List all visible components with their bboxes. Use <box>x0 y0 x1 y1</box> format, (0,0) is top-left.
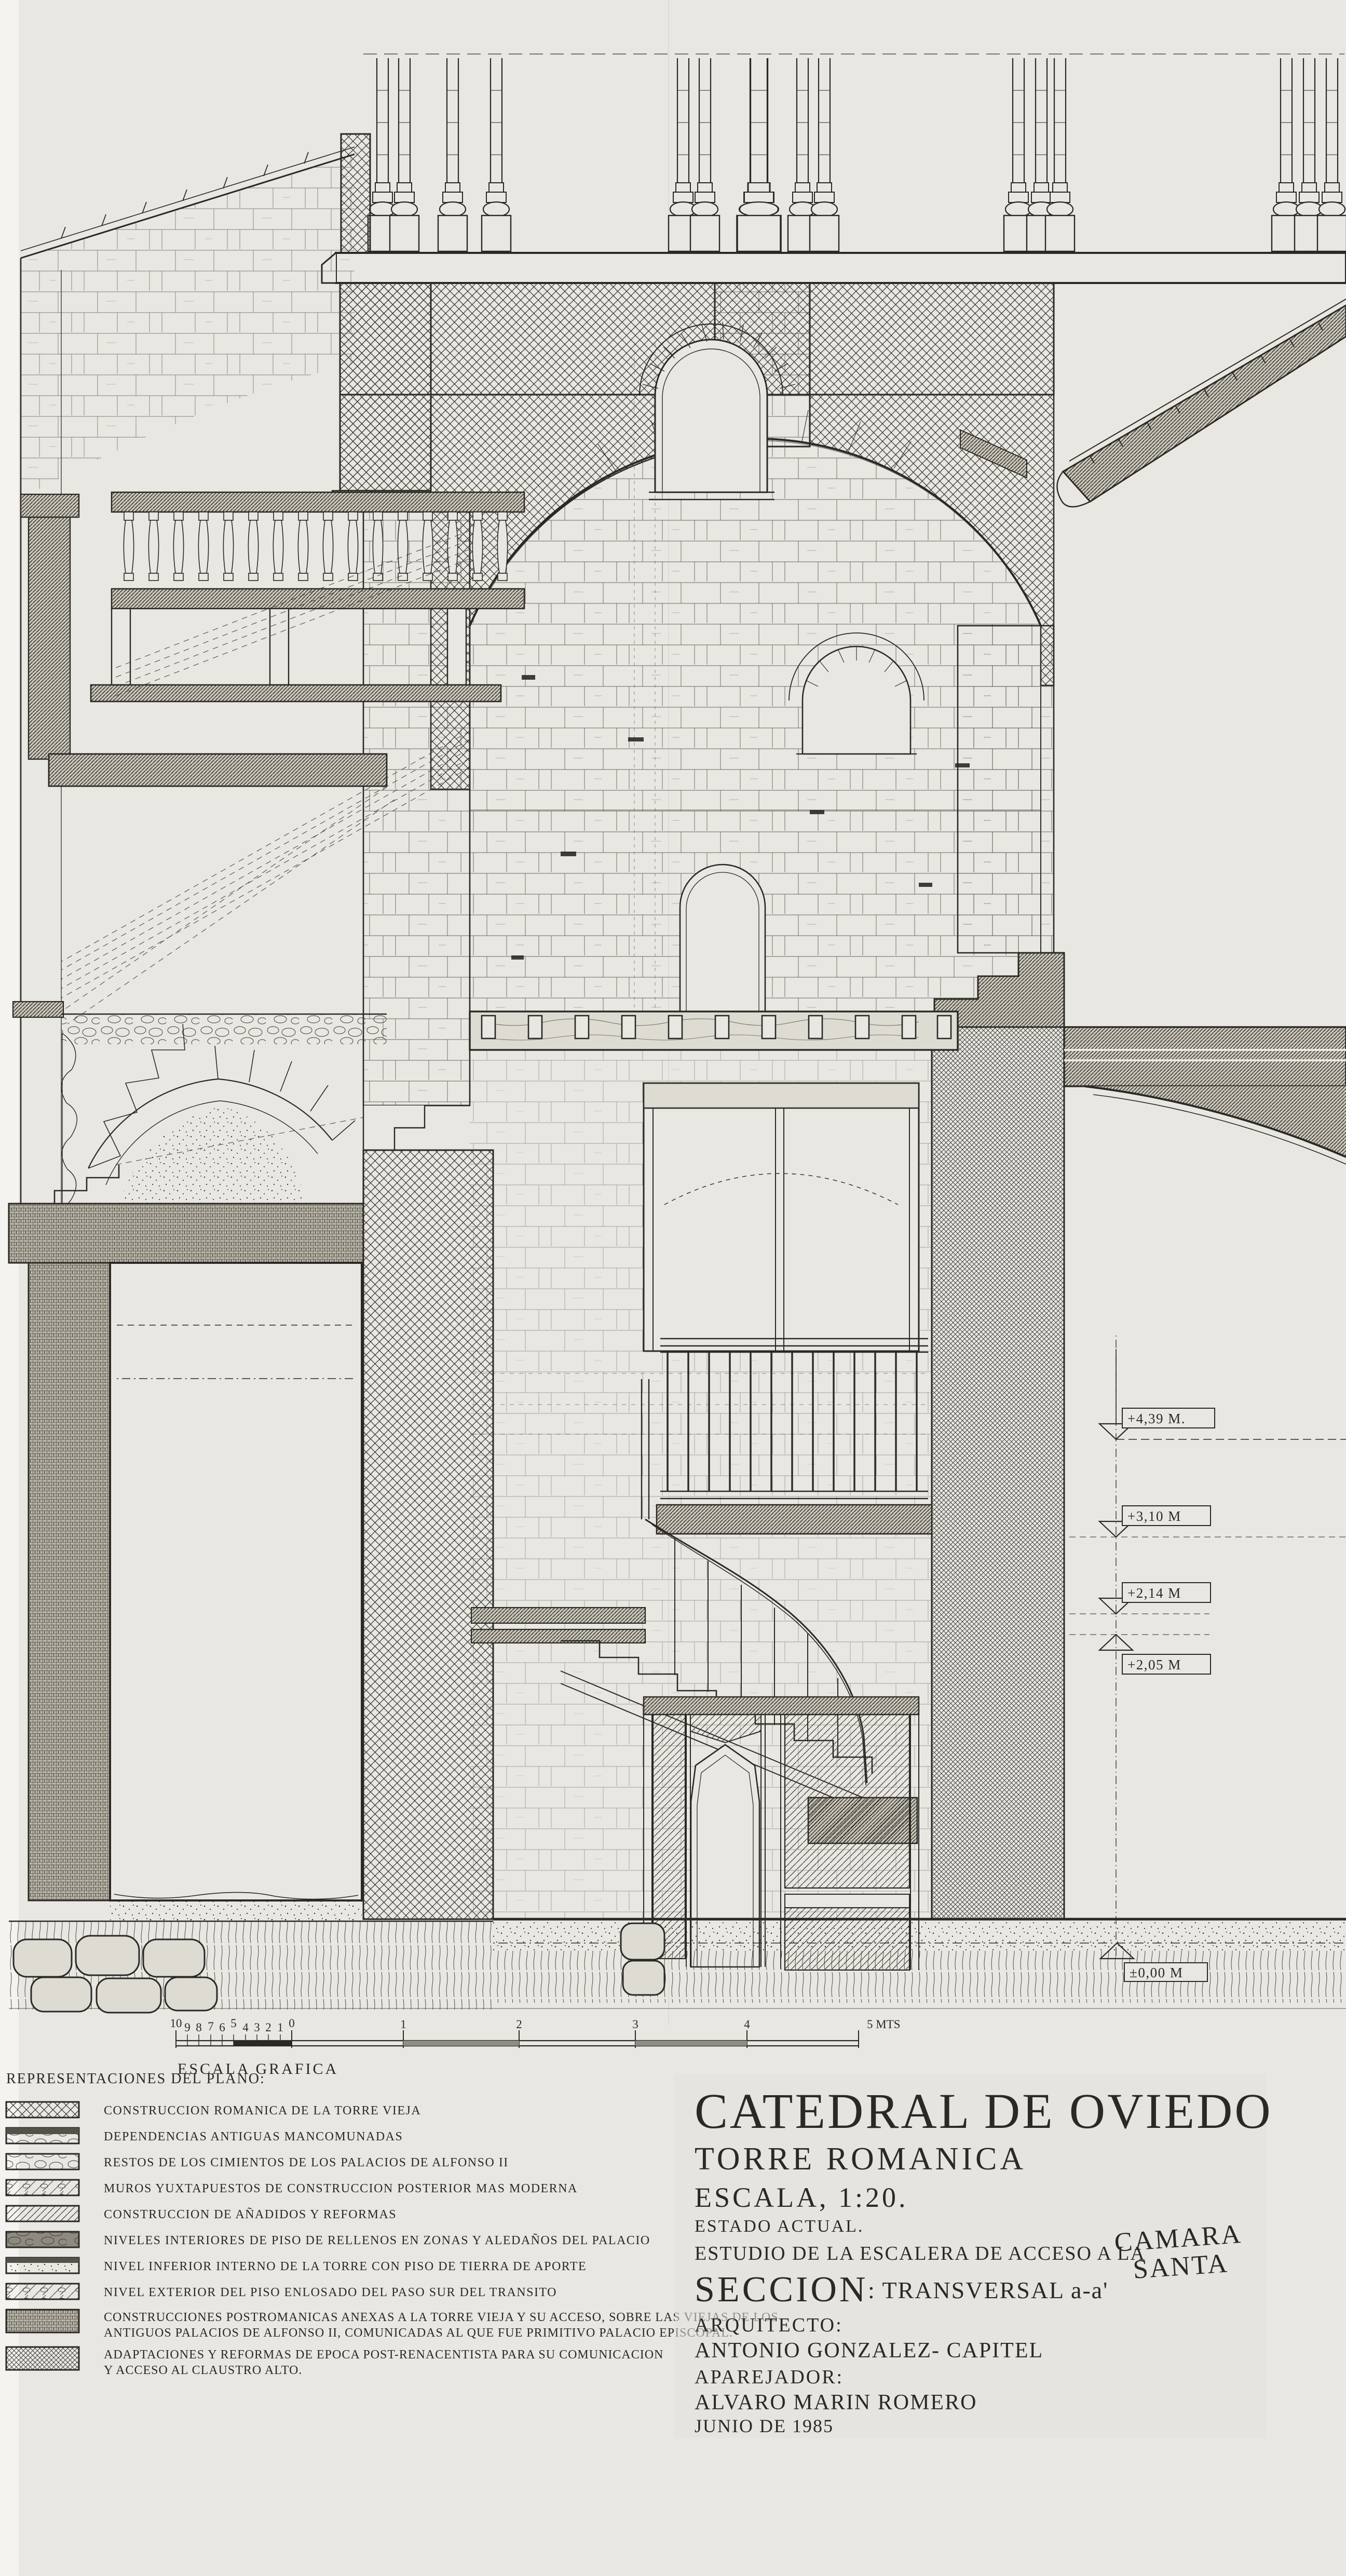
svg-text:CONSTRUCCION DE AÑADIDOS Y REF: CONSTRUCCION DE AÑADIDOS Y REFORMAS <box>104 2208 397 2221</box>
scale-tick: 4 <box>242 2021 249 2034</box>
scale-tick: 6 <box>219 2021 225 2034</box>
drawing-scale: ESCALA, 1:20. <box>695 2182 908 2213</box>
architect-name: ANTONIO GONZALEZ- CAPITEL <box>695 2339 1043 2363</box>
title-block: CATEDRAL DE OVIEDO TORRE ROMANICA ESCALA… <box>675 2074 1273 2438</box>
elevation-label: +4,39 M. <box>1127 1411 1186 1426</box>
svg-text:NIVELES INTERIORES DE PISO DE: NIVELES INTERIORES DE PISO DE RELLENOS E… <box>104 2234 650 2247</box>
scale-meter: 5 MTS <box>867 2018 901 2031</box>
svg-text:ANTIGUOS PALACIOS DE ALFONSO I: ANTIGUOS PALACIOS DE ALFONSO II, COMUNIC… <box>104 2326 733 2340</box>
scale-tick: 7 <box>208 2020 214 2033</box>
tower-interior-lower <box>470 1050 932 1970</box>
scale-tick: 5 <box>230 2017 237 2030</box>
project-title: CATEDRAL DE OVIEDO <box>695 2083 1273 2139</box>
surveyor-name: ALVARO MARIN ROMERO <box>695 2391 977 2415</box>
scale-tick: 3 <box>254 2021 260 2034</box>
elevation-label: +3,10 M <box>1127 1508 1181 1524</box>
section-detail: : TRANSVERSAL a-a' <box>868 2277 1108 2303</box>
scale-tick: 2 <box>265 2021 271 2034</box>
legend-title: REPRESENTACIONES DEL PLANO: <box>6 2071 265 2087</box>
svg-text:DEPENDENCIAS ANTIGUAS MANCOMUN: DEPENDENCIAS ANTIGUAS MANCOMUNADAS <box>104 2130 403 2143</box>
scale-tick: 0 <box>289 2017 295 2030</box>
svg-text:ADAPTACIONES Y REFORMAS DE EPO: ADAPTACIONES Y REFORMAS DE EPOCA POST-RE… <box>104 2348 663 2362</box>
drawing-status: ESTADO ACTUAL. <box>695 2217 864 2236</box>
scale-tick: 8 <box>196 2021 202 2034</box>
svg-text:RESTOS DE LOS CIMIENTOS DE LOS: RESTOS DE LOS CIMIENTOS DE LOS PALACIOS … <box>104 2156 509 2169</box>
timber-joist-floor <box>470 1011 958 1050</box>
study-line: ESTUDIO DE LA ESCALERA DE ACCESO A LA <box>695 2243 1146 2264</box>
svg-text:MUROS YUXTAPUESTOS DE CONSTRUC: MUROS YUXTAPUESTOS DE CONSTRUCCION POSTE… <box>104 2182 578 2195</box>
legend-row: DEPENDENCIAS ANTIGUAS MANCOMUNADAS <box>6 2128 403 2143</box>
section-drawing: +4,39 M. +3,10 M +2,14 M +2,05 M ±0,00 M… <box>0 0 1346 2576</box>
svg-text:Y ACCESO AL CLAUSTRO ALTO.: Y ACCESO AL CLAUSTRO ALTO. <box>104 2364 302 2377</box>
elevation-label: +2,05 M <box>1127 1657 1181 1673</box>
project-subtitle: TORRE ROMANICA <box>695 2141 1026 2177</box>
elevation-label: ±0,00 M <box>1130 1965 1183 1980</box>
scale-meter: 4 <box>744 2018 750 2031</box>
section-label: SECCION <box>695 2270 868 2310</box>
surveyor-label: APAREJADOR: <box>695 2366 844 2388</box>
legend-row: CONSTRUCCION ROMANICA DE LA TORRE VIEJA <box>6 2102 421 2118</box>
lower-niche-window <box>680 865 765 1011</box>
drawing-sheet: +4,39 M. +3,10 M +2,14 M +2,05 M ±0,00 M… <box>0 0 1346 2576</box>
transit-floor-band <box>1064 1027 1346 1086</box>
scale-meter: 2 <box>516 2018 522 2031</box>
scale-tick: 10 <box>170 2017 182 2030</box>
elevation-label: +2,14 M <box>1127 1585 1181 1601</box>
scale-meter: 1 <box>400 2018 406 2031</box>
scale-tick: 9 <box>184 2021 191 2034</box>
svg-text:CONSTRUCCION ROMANICA DE LA TO: CONSTRUCCION ROMANICA DE LA TORRE VIEJA <box>104 2104 421 2118</box>
annex-building <box>9 1165 363 1921</box>
svg-text:NIVEL EXTERIOR DEL PISO ENLOSA: NIVEL EXTERIOR DEL PISO ENLOSADO DEL PAS… <box>104 2286 557 2299</box>
scale-meter: 3 <box>632 2018 638 2031</box>
svg-text:NIVEL INFERIOR INTERNO DE LA T: NIVEL INFERIOR INTERNO DE LA TORRE CON P… <box>104 2260 587 2273</box>
scale-tick: 1 <box>277 2021 283 2034</box>
legend-row: CONSTRUCCION DE AÑADIDOS Y REFORMAS <box>6 2206 397 2221</box>
drawing-date: JUNIO DE 1985 <box>695 2416 834 2436</box>
architect-label: ARQUITECTO: <box>695 2314 843 2336</box>
